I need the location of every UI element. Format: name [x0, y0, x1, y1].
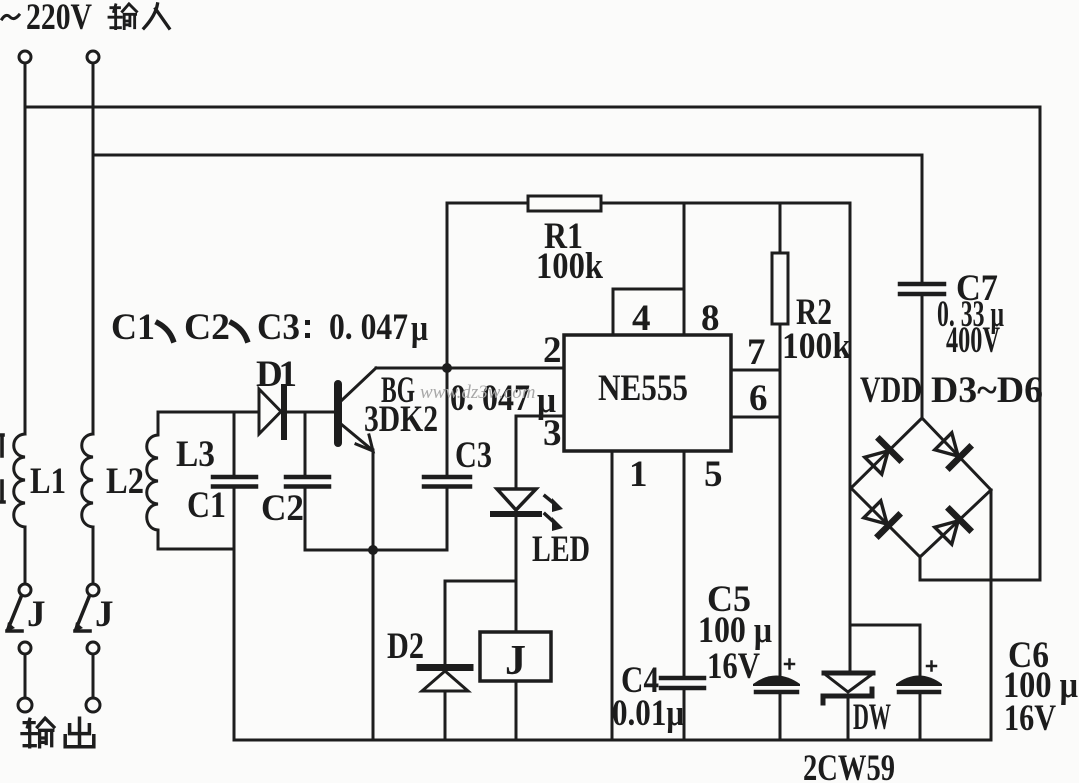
- svg-text:100k: 100k: [782, 326, 851, 367]
- svg-text:D2: D2: [387, 626, 424, 667]
- svg-text:J: J: [505, 638, 526, 684]
- svg-text:8: 8: [701, 298, 720, 339]
- svg-text:NE555: NE555: [598, 368, 688, 409]
- svg-text:DW: DW: [853, 697, 891, 738]
- svg-text:μ: μ: [411, 308, 428, 349]
- svg-text:3DK2: 3DK2: [364, 399, 438, 440]
- svg-text:0.01μ: 0.01μ: [612, 693, 684, 734]
- svg-text:16V: 16V: [707, 646, 760, 687]
- svg-text:100 μ: 100 μ: [698, 610, 772, 651]
- svg-text:L1: L1: [30, 461, 66, 502]
- svg-text:J: J: [27, 594, 46, 635]
- svg-text:7: 7: [747, 332, 766, 373]
- svg-text:L3: L3: [176, 434, 215, 475]
- svg-text:LED: LED: [532, 529, 590, 570]
- svg-text:J: J: [95, 594, 114, 635]
- svg-text:C1: C1: [111, 307, 155, 348]
- svg-text:www.dz3w.com: www.dz3w.com: [420, 382, 535, 403]
- svg-text:6: 6: [749, 378, 768, 419]
- svg-text:2CW59: 2CW59: [803, 748, 895, 783]
- svg-text:220V: 220V: [26, 0, 92, 38]
- svg-text:C2: C2: [184, 307, 230, 348]
- svg-text:C1: C1: [187, 485, 226, 526]
- svg-text:4: 4: [632, 298, 651, 339]
- svg-text:C3: C3: [257, 307, 300, 348]
- svg-text:2: 2: [543, 330, 562, 371]
- svg-text:C3: C3: [455, 435, 492, 476]
- svg-text:0. 047: 0. 047: [329, 307, 408, 348]
- svg-text:VDD: VDD: [860, 370, 922, 411]
- svg-text:5: 5: [704, 454, 723, 495]
- svg-text:C2: C2: [261, 488, 304, 529]
- svg-text:L2: L2: [106, 461, 144, 502]
- svg-text:1: 1: [629, 454, 648, 495]
- svg-text:400V: 400V: [946, 320, 1000, 361]
- svg-text:16V: 16V: [1004, 698, 1056, 739]
- svg-text:D 1: D 1: [256, 354, 297, 395]
- svg-text:D3~D6: D3~D6: [931, 370, 1043, 411]
- svg-text:100k: 100k: [536, 246, 603, 287]
